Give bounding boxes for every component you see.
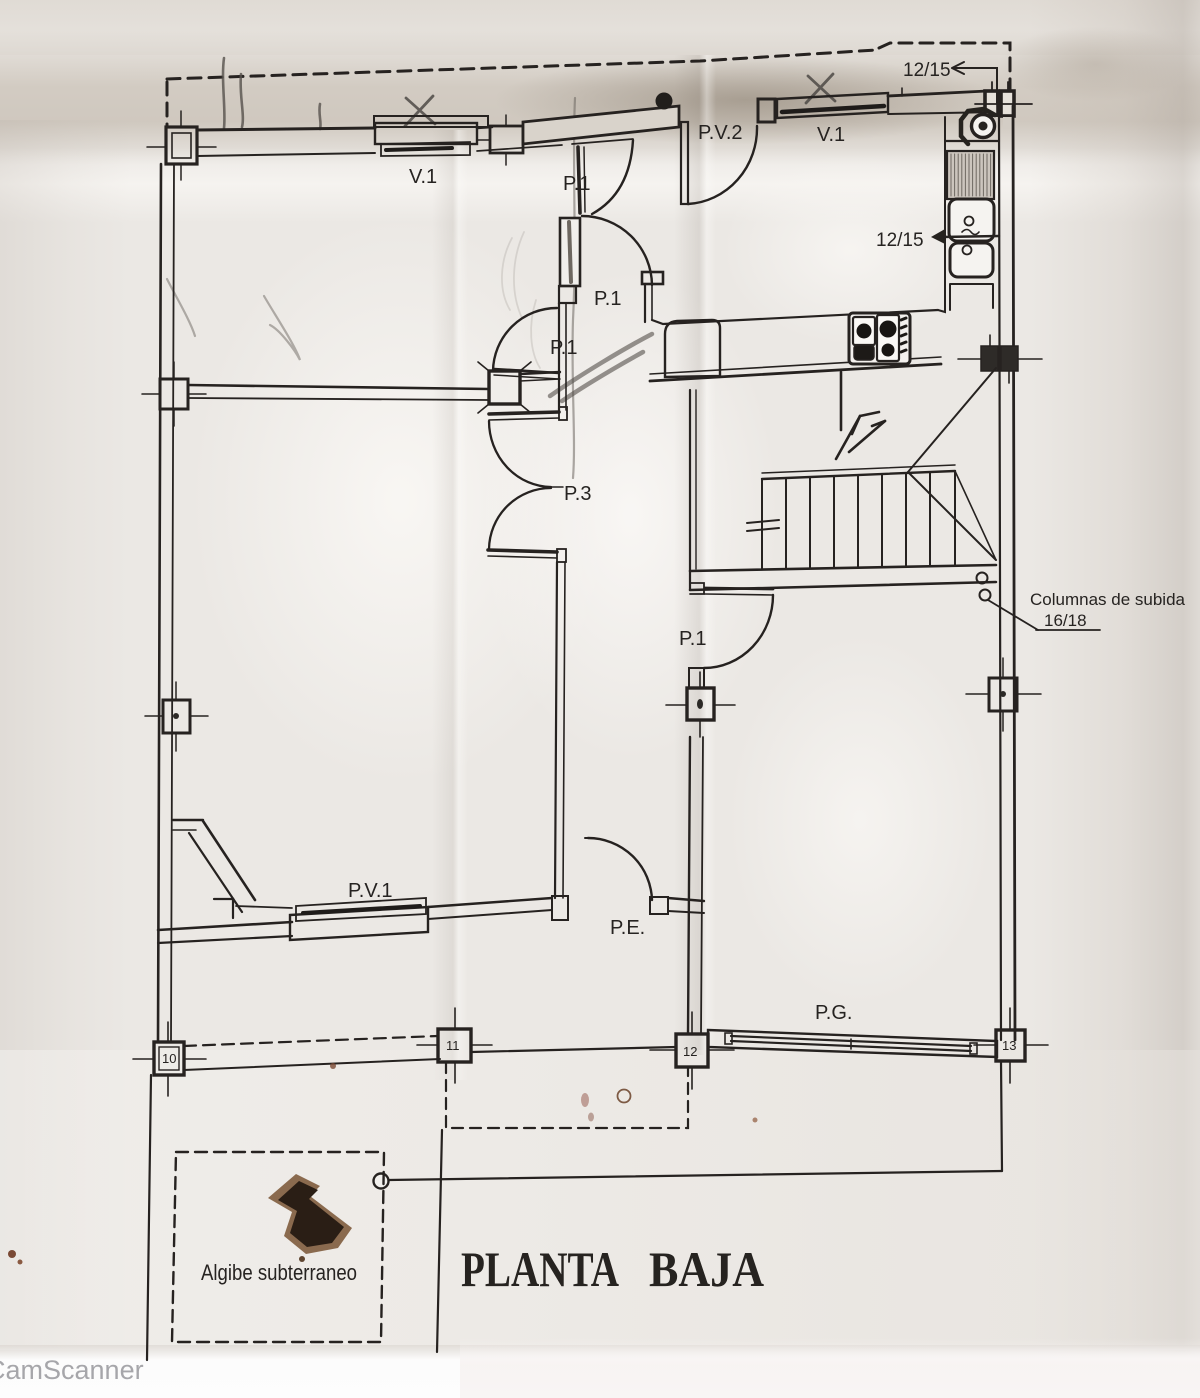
svg-text:P.1: P.1 [594, 288, 621, 310]
svg-text:16/18: 16/18 [1044, 611, 1087, 630]
svg-text:V.1: V.1 [409, 166, 437, 188]
svg-text:P.V.2: P.V.2 [698, 122, 743, 144]
svg-text:12/15: 12/15 [876, 230, 924, 251]
svg-text:Algibe subterraneo: Algibe subterraneo [201, 1260, 357, 1285]
svg-text:P.V.1: P.V.1 [348, 880, 393, 902]
svg-text:P.E.: P.E. [610, 917, 645, 939]
svg-text:12/15: 12/15 [903, 60, 951, 81]
svg-text:12: 12 [683, 1044, 697, 1059]
svg-text:P.G.: P.G. [815, 1002, 852, 1024]
svg-text:13: 13 [1002, 1038, 1016, 1053]
svg-text:10: 10 [162, 1051, 176, 1066]
svg-text:11: 11 [446, 1038, 460, 1053]
svg-text:BAJA: BAJA [649, 1241, 764, 1297]
svg-text:Columnas de subida: Columnas de subida [1030, 590, 1186, 609]
svg-text:V.1: V.1 [817, 124, 845, 146]
svg-text:P.1: P.1 [563, 173, 590, 195]
svg-text:P.3: P.3 [564, 483, 591, 505]
svg-text:P.1: P.1 [550, 337, 577, 359]
svg-text:P.1: P.1 [679, 628, 706, 650]
svg-text:PLANTA: PLANTA [461, 1241, 619, 1297]
